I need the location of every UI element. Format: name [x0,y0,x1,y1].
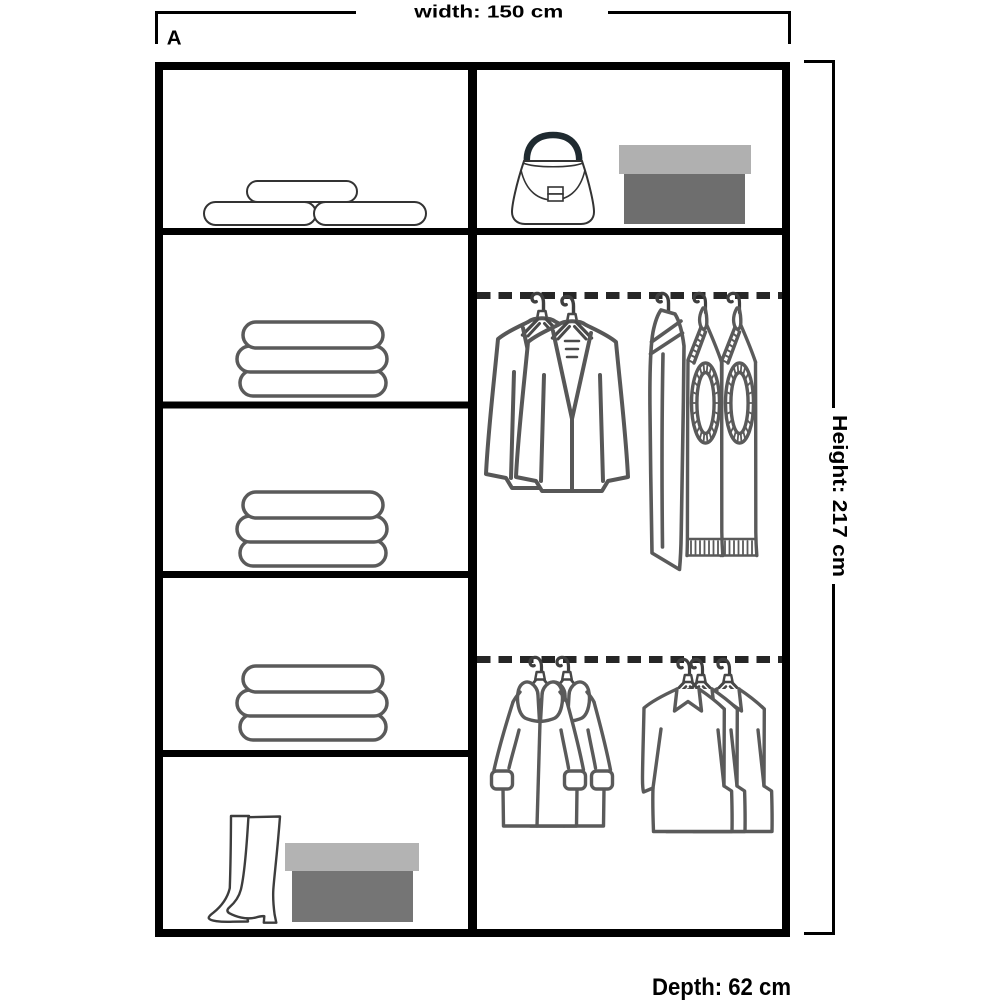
svg-text:A: A [167,27,182,50]
svg-text:width: 150 cm: width: 150 cm [413,2,563,22]
svg-text:Height: 217 cm: Height: 217 cm [828,415,851,577]
svg-text:Depth: 62 cm: Depth: 62 cm [652,974,791,1000]
